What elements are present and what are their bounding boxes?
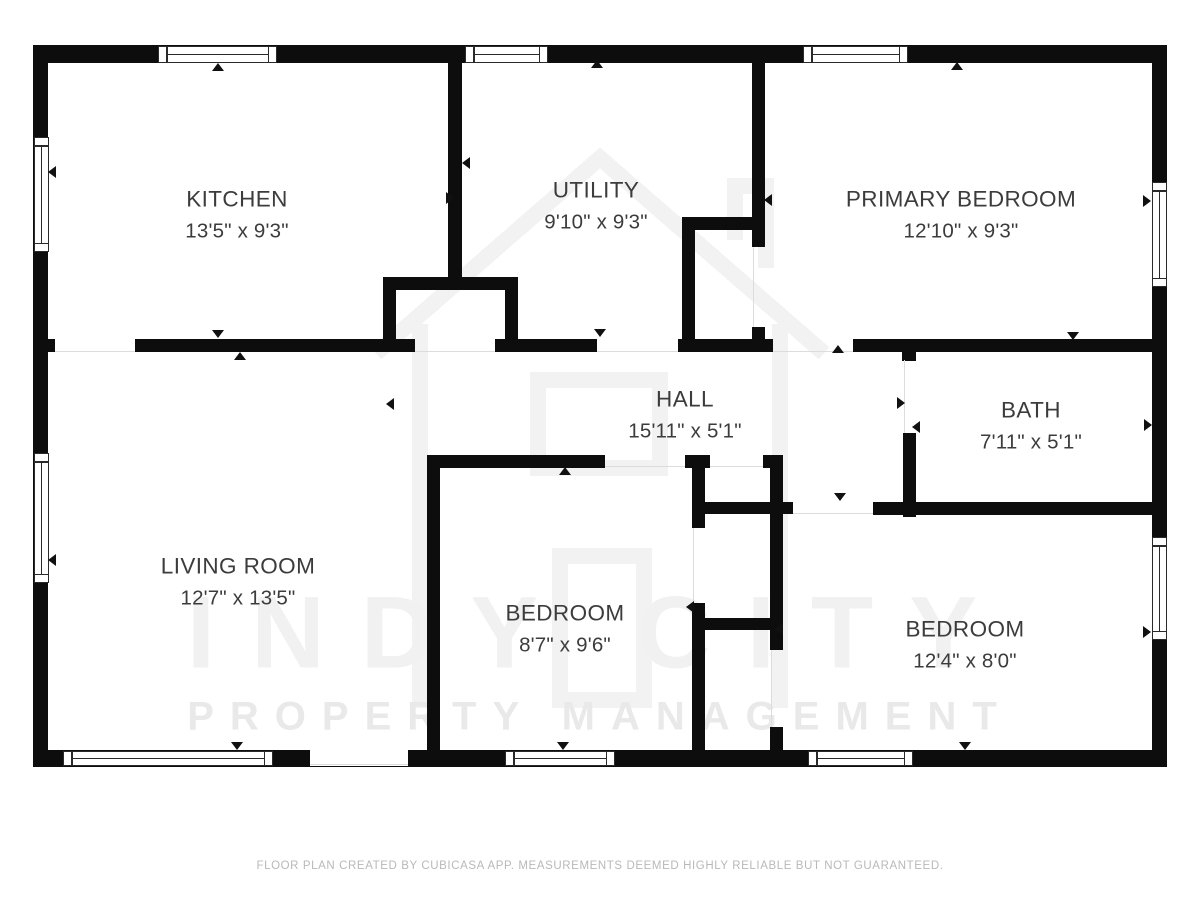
door-swing-arrow-icon	[231, 742, 243, 750]
door-swing-arrow-icon	[48, 554, 56, 566]
room-dimensions: 12'10" x 9'3"	[846, 216, 1076, 248]
door-swing-arrow-icon	[764, 194, 772, 206]
door-swing-arrow-icon	[234, 352, 246, 360]
door-swing-arrow-icon	[212, 63, 224, 71]
room-dimensions: 9'10" x 9'3"	[544, 207, 647, 239]
room-label-living-room: LIVING ROOM12'7" x 13'5"	[161, 550, 315, 615]
door-swing-arrow-icon	[1143, 195, 1151, 207]
room-name: BEDROOM	[505, 597, 624, 630]
door-swing-arrow-icon	[832, 345, 844, 353]
door-swing-arrow-icon	[1144, 419, 1152, 431]
room-label-utility: UTILITY9'10" x 9'3"	[544, 174, 647, 239]
door-threshold-line	[310, 764, 408, 765]
room-label-kitchen: KITCHEN13'5" x 9'3"	[185, 183, 288, 248]
door-threshold-line	[693, 528, 694, 603]
room-name: HALL	[628, 383, 742, 416]
room-name: PRIMARY BEDROOM	[846, 183, 1076, 216]
door-threshold-line	[793, 513, 873, 514]
room-name: KITCHEN	[185, 183, 288, 216]
door-threshold-line	[55, 351, 135, 352]
room-dimensions: 13'5" x 9'3"	[185, 216, 288, 248]
door-swing-arrow-icon	[591, 60, 603, 68]
room-label-bath: BATH7'11" x 5'1"	[980, 394, 1082, 459]
door-threshold-line	[771, 650, 772, 727]
door-swing-arrow-icon	[212, 330, 224, 338]
door-swing-arrow-icon	[557, 742, 569, 750]
room-name: LIVING ROOM	[161, 550, 315, 583]
room-label-primary-bedroom: PRIMARY BEDROOM12'10" x 9'3"	[846, 183, 1076, 248]
door-swing-arrow-icon	[446, 192, 454, 204]
room-dimensions: 15'11" x 5'1"	[628, 416, 742, 448]
door-threshold-line	[597, 351, 678, 352]
room-label-bedroom-small: BEDROOM8'7" x 9'6"	[505, 597, 624, 662]
room-dimensions: 12'4" x 8'0"	[905, 646, 1024, 678]
door-swing-arrow-icon	[951, 62, 963, 70]
door-swing-arrow-icon	[386, 398, 394, 410]
door-swing-arrow-icon	[1067, 332, 1079, 340]
room-name: UTILITY	[544, 174, 647, 207]
door-threshold-line	[710, 466, 763, 467]
door-swing-arrow-icon	[1143, 626, 1151, 638]
floor-plan-canvas: INDY CITY PROPERTY MANAGEMENT KITCHEN13'…	[0, 0, 1200, 900]
room-name: BEDROOM	[905, 613, 1024, 646]
room-dimensions: 7'11" x 5'1"	[980, 427, 1082, 459]
door-threshold-line	[605, 466, 685, 467]
door-swing-arrow-icon	[48, 166, 56, 178]
door-swing-arrow-icon	[912, 421, 920, 433]
door-swing-arrow-icon	[897, 397, 905, 409]
door-threshold-line	[753, 247, 754, 327]
footer-disclaimer: FLOOR PLAN CREATED BY CUBICASA APP. MEAS…	[0, 860, 1200, 872]
room-dimensions: 12'7" x 13'5"	[161, 583, 315, 615]
door-swing-arrow-icon	[559, 467, 571, 475]
door-threshold-line	[415, 351, 495, 352]
room-name: BATH	[980, 394, 1082, 427]
door-swing-arrow-icon	[775, 623, 783, 635]
door-swing-arrow-icon	[686, 601, 694, 613]
room-dimensions: 8'7" x 9'6"	[505, 630, 624, 662]
room-label-hall: HALL15'11" x 5'1"	[628, 383, 742, 448]
door-swing-arrow-icon	[959, 742, 971, 750]
door-swing-arrow-icon	[462, 157, 470, 169]
door-swing-arrow-icon	[594, 329, 606, 337]
door-swing-arrow-icon	[834, 493, 846, 501]
room-label-bedroom-large: BEDROOM12'4" x 8'0"	[905, 613, 1024, 678]
